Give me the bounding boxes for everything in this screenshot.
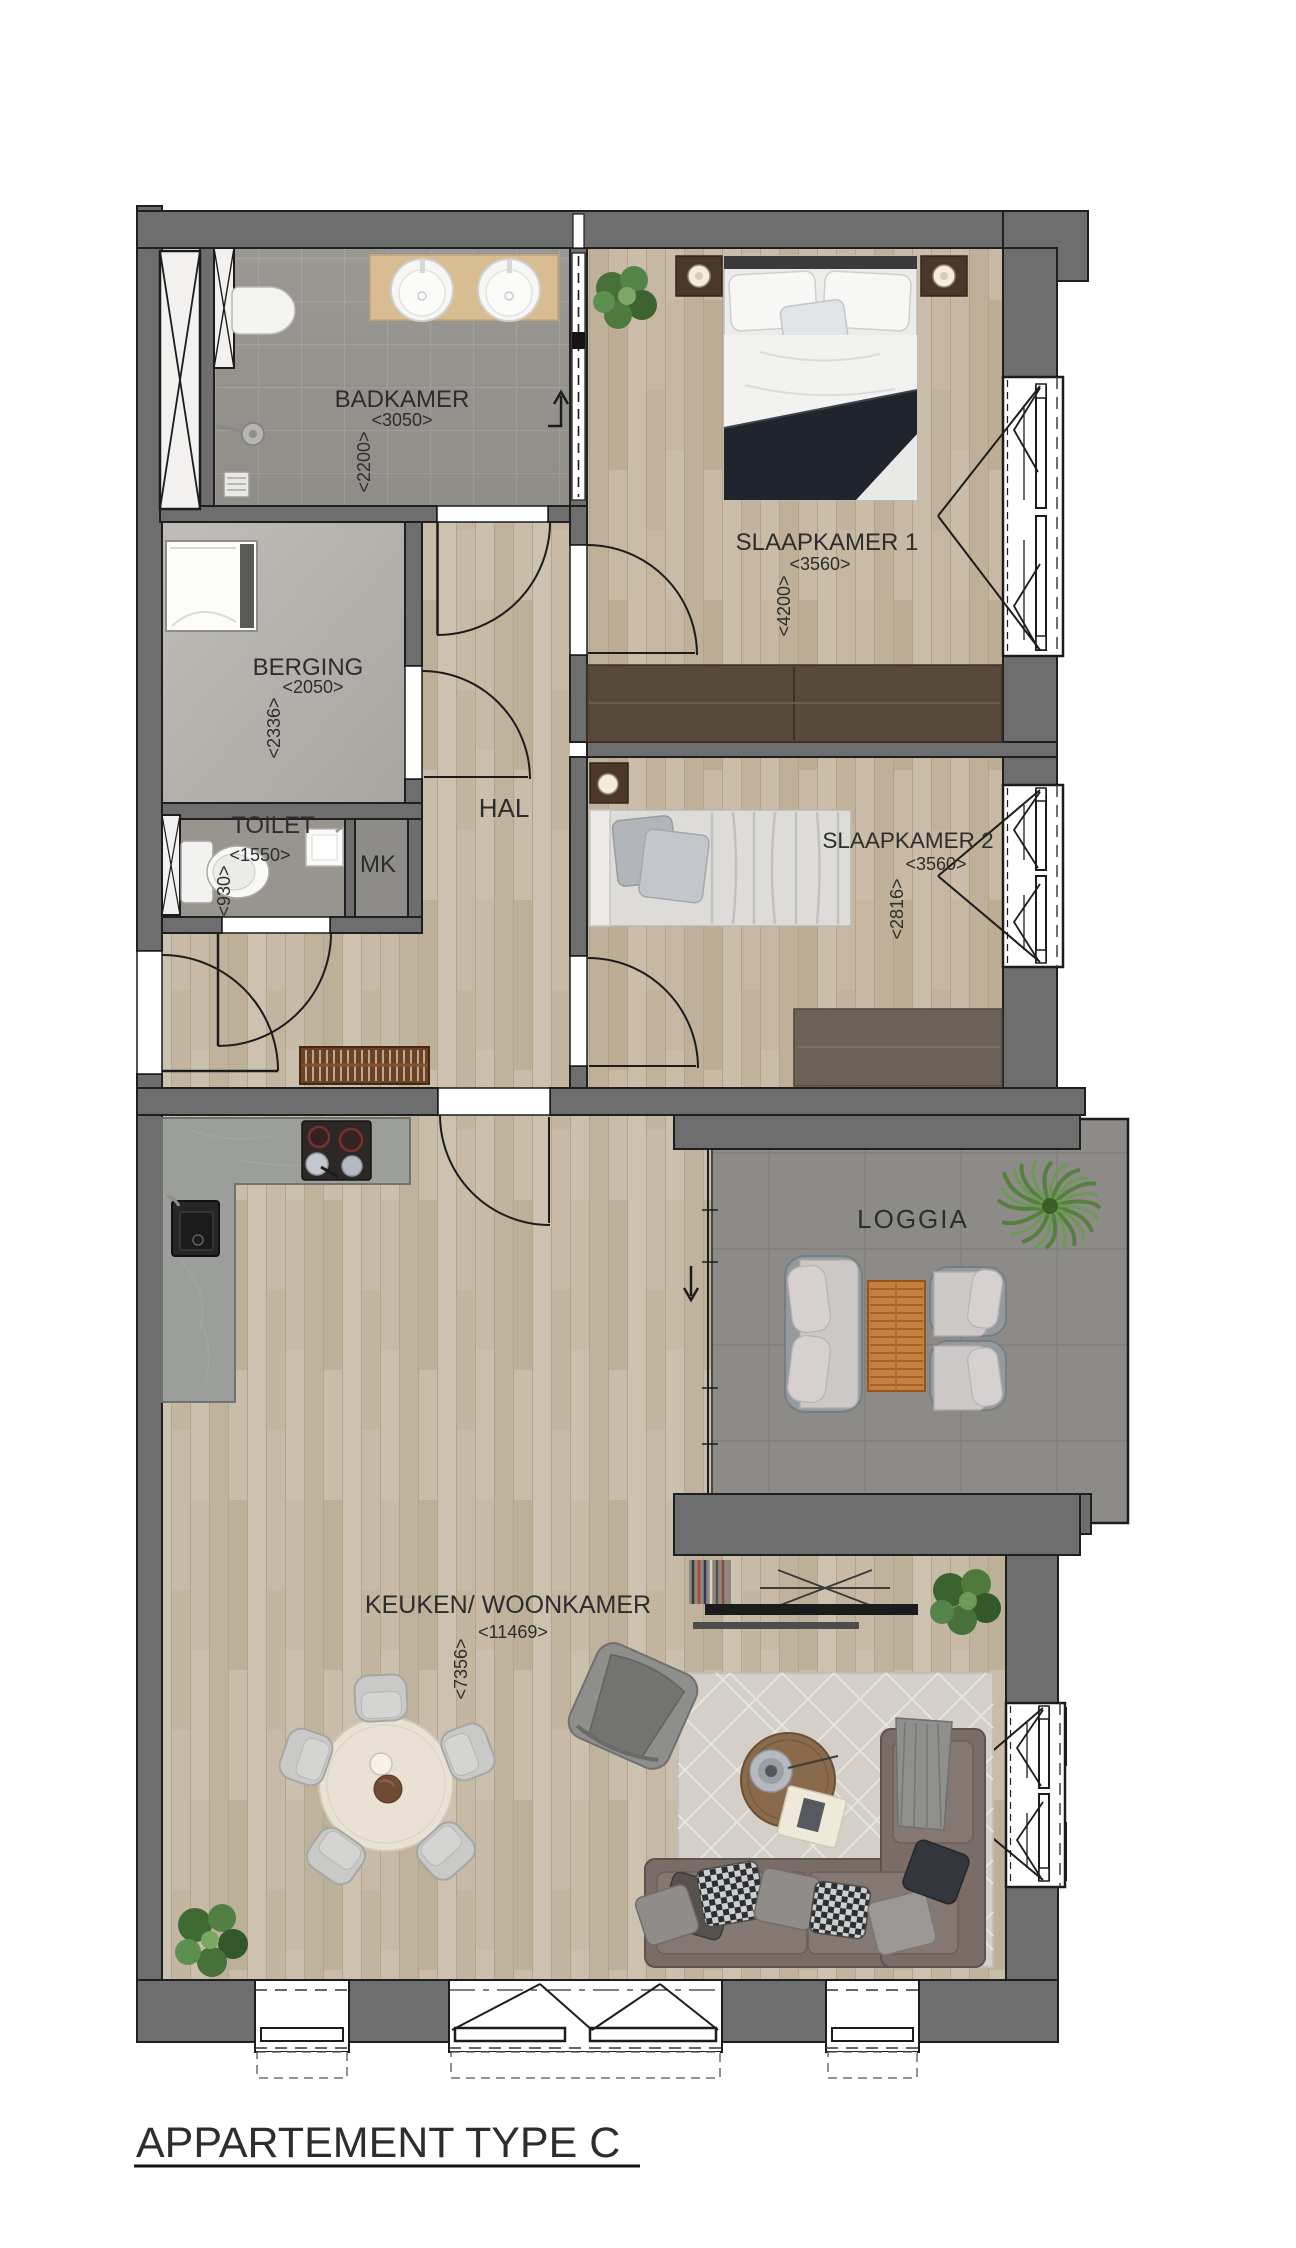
- svg-text:<4200>: <4200>: [774, 575, 794, 636]
- svg-text:<3560>: <3560>: [789, 554, 850, 574]
- svg-text:LOGGIA: LOGGIA: [857, 1204, 969, 1234]
- svg-text:<11469>: <11469>: [478, 1622, 548, 1642]
- svg-text:<2200>: <2200>: [354, 431, 374, 492]
- svg-text:HAL: HAL: [479, 793, 530, 823]
- svg-text:SLAAPKAMER 1: SLAAPKAMER 1: [736, 529, 919, 556]
- svg-text:TOILET: TOILET: [231, 812, 315, 839]
- svg-text:APPARTEMENT TYPE C: APPARTEMENT TYPE C: [136, 2119, 620, 2167]
- svg-text:<7356>: <7356>: [451, 1638, 471, 1699]
- svg-text:KEUKEN/ WOONKAMER: KEUKEN/ WOONKAMER: [365, 1591, 651, 1619]
- svg-text:<2050>: <2050>: [282, 677, 343, 697]
- svg-text:MK: MK: [360, 851, 396, 878]
- svg-text:<2816>: <2816>: [887, 878, 907, 939]
- svg-text:<2336>: <2336>: [264, 697, 284, 758]
- svg-text:<3560>: <3560>: [905, 854, 966, 874]
- svg-text:SLAAPKAMER 2: SLAAPKAMER 2: [822, 828, 993, 853]
- svg-text:<930>: <930>: [214, 865, 234, 916]
- svg-text:<3050>: <3050>: [371, 410, 432, 430]
- svg-text:<1550>: <1550>: [229, 845, 290, 865]
- svg-text:BADKAMER: BADKAMER: [335, 386, 470, 413]
